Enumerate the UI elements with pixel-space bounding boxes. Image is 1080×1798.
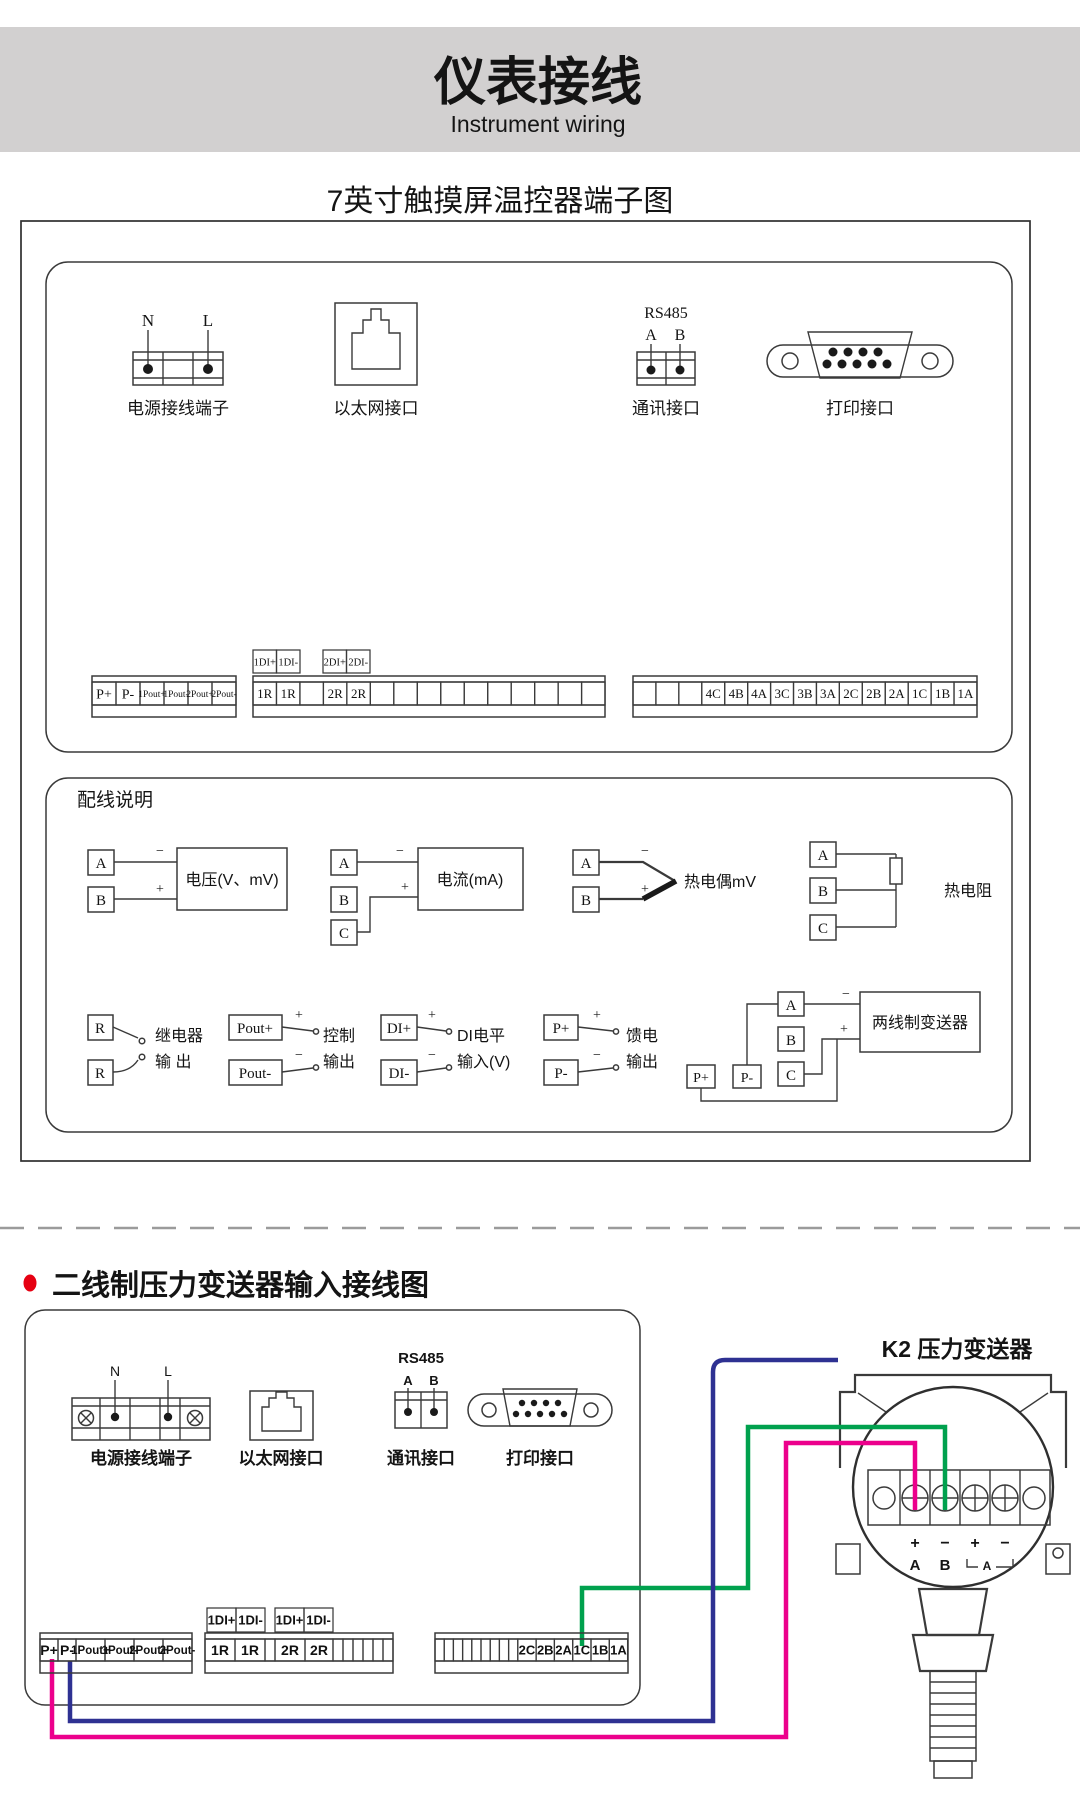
wire-pink (52, 1443, 915, 1737)
control-label2: 输出 (323, 1053, 355, 1071)
rs485-b-label: B (429, 1373, 438, 1388)
transmitter-title: K2 压力变送器 (882, 1336, 1034, 1362)
plus-mark: + (641, 882, 649, 897)
terminal-a: A (581, 856, 592, 872)
relay-label2: 输 出 (155, 1053, 191, 1071)
terminal-cell (679, 682, 702, 705)
transmitter-hex-nut (913, 1635, 993, 1671)
minus-mark: − (396, 844, 404, 859)
wire-blue (70, 1360, 838, 1721)
thermocouple-label: 热电偶mV (684, 873, 756, 891)
minus-mark: − (295, 1048, 303, 1063)
terminal-p-plus: P+ (553, 1021, 570, 1037)
plus-mark: + (593, 1008, 601, 1023)
minus-mark: − (641, 844, 649, 859)
printer-port: 打印接口 (767, 332, 953, 418)
plus-mark: + (401, 880, 409, 895)
switch-contact (139, 1038, 145, 1044)
di-terminal-box-2: 2DI+2DI- (323, 650, 370, 673)
printer-caption: 打印接口 (506, 1448, 574, 1468)
plus-mark: + (156, 882, 164, 897)
power-caption: 电源接线端子 (127, 399, 229, 418)
terminal-cell-label: 1R (211, 1642, 229, 1658)
terminal-p-minus: P- (741, 1071, 754, 1086)
wiring-current: A B C − + 电流(mA) (331, 844, 523, 945)
terminal-cell-label: 1C (912, 686, 927, 701)
terminal-cell (535, 682, 558, 705)
printer-caption: 打印接口 (826, 399, 894, 418)
rs485-a-label: A (645, 327, 657, 344)
terminal-cell (472, 1639, 481, 1661)
terminal-cell-label: 4C (706, 686, 721, 701)
minus-mark: − (428, 1048, 436, 1063)
terminal-cell-label: 1R (281, 686, 297, 701)
plus-mark: + (295, 1008, 303, 1023)
terminal-cell-label: 2R (328, 686, 344, 701)
wiring-thermocouple: A B − + 热电偶mV (573, 844, 756, 912)
terminal-cell (490, 1639, 499, 1661)
terminal-cell-label: 2R (281, 1642, 299, 1658)
terminal-cell (265, 1639, 275, 1661)
n-terminal-dot (143, 364, 153, 374)
terminal-b-label: B (940, 1557, 951, 1574)
wiring-twowire: A B C P+ P- − + 两线制变送器 (687, 987, 980, 1101)
terminal-cell-label: 2Pout+ (186, 690, 214, 700)
minus-mark: − (156, 844, 164, 859)
plus-mark: + (428, 1008, 436, 1023)
ethernet-port-bottom: 以太网接口 (239, 1391, 324, 1468)
terminal-cell-label: P- (122, 688, 135, 703)
rs485-port-bottom: RS485 A B 通讯接口 (387, 1350, 455, 1468)
n-label: N (110, 1363, 120, 1379)
terminal-cell-label: 1DI+ (254, 657, 276, 668)
terminal-di-minus: DI- (389, 1066, 410, 1082)
transmitter-tip (934, 1761, 972, 1778)
minus-mark: − (940, 1535, 949, 1552)
terminal-cell (383, 1639, 393, 1661)
di-label2: 输入(V) (457, 1053, 510, 1071)
terminal-cell-label: 2DI+ (324, 657, 346, 668)
voltage-label: 电压(V、mV) (185, 871, 278, 889)
terminal-cell-label: 1DI+ (276, 1613, 304, 1628)
terminal-cell (363, 1639, 373, 1661)
pressure-transmitter: + − + − A B A (836, 1375, 1070, 1778)
terminal-cell (441, 682, 464, 705)
right-terminal-strip-bottom: 2C2B2A1C1B1A (435, 1633, 628, 1673)
terminal-b: B (96, 893, 106, 909)
terminal-a: A (818, 848, 829, 864)
terminal-cell-label: 3A (820, 686, 837, 701)
rs485-label: RS485 (644, 305, 688, 322)
terminal-cell-label: 4B (729, 686, 745, 701)
rs485-a-label: A (403, 1373, 413, 1388)
terminal-b: B (786, 1033, 796, 1049)
terminal-a: A (786, 998, 797, 1014)
resistor-icon (890, 858, 902, 884)
terminal-cell (370, 682, 393, 705)
ethernet-caption: 以太网接口 (334, 399, 419, 418)
minus-mark: − (1000, 1535, 1009, 1552)
terminal-cell (509, 1639, 518, 1661)
terminal-di-plus: DI+ (387, 1021, 411, 1037)
terminal-cell-label: 1DI+ (208, 1613, 236, 1628)
terminal-cell (333, 1639, 343, 1661)
terminal-cell-label: 3B (797, 686, 813, 701)
terminal-cell-label: P+ (96, 688, 112, 703)
wiring-diagram-canvas: 仪表接线 Instrument wiring 7英寸触摸屏温控器端子图 N L … (0, 0, 1080, 1798)
wiring-feed: P+ P- + − 馈电 输出 (544, 1008, 658, 1085)
di-terminal-box-1: 1DI+1DI- (253, 650, 300, 673)
terminal-cell (353, 1639, 363, 1661)
page-subtitle: Instrument wiring (450, 111, 625, 137)
terminal-cell (453, 1639, 462, 1661)
left-terminal-strip-bottom: P+P-1Pout+1Pout-2Pout+2Pout- (40, 1633, 196, 1673)
terminal-cell-label: 2DI- (348, 657, 368, 668)
rs485-port: RS485 A B 通讯接口 (632, 305, 700, 418)
relay-label: 继电器 (155, 1027, 203, 1045)
terminal-a: A (96, 856, 107, 872)
bullet-icon (24, 1275, 37, 1292)
terminal-b: B (339, 893, 349, 909)
power-terminal: N L 电源接线端子 (127, 311, 229, 418)
terminal-cell-label: 2A (555, 1643, 572, 1658)
section2-title: 二线制压力变送器输入接线图 (52, 1268, 429, 1302)
current-label: 电流(mA) (437, 871, 504, 889)
switch-contact (139, 1054, 145, 1060)
left-terminal-strip: P+P-1Pout+1Pout-2Pout+2Pout- (92, 676, 237, 717)
terminal-a-label: A (910, 1557, 921, 1574)
page-title: 仪表接线 (433, 54, 642, 112)
plus-mark: + (970, 1535, 979, 1552)
terminal-cell (343, 1639, 353, 1661)
terminal-cell-label: 4A (751, 686, 768, 701)
terminal-cell-label: 2C (519, 1643, 536, 1658)
terminal-cell-label: 2R (310, 1642, 328, 1658)
pair2-label: A (983, 1559, 992, 1573)
wiring-relay: R R 继电器 输 出 (88, 1015, 203, 1085)
terminal-cell (488, 682, 511, 705)
terminal-cell-label: 1Pout+ (138, 690, 166, 700)
wiring-voltage: A B − + 电压(V、mV) (88, 844, 287, 912)
terminal-cell-label: 2Pout- (211, 690, 236, 700)
terminal-cell-label: 2C (843, 686, 858, 701)
section1-terminal-diagram: N L 电源接线端子 以太网接口 RS485 A B (21, 221, 1030, 1161)
terminal-cell (300, 682, 323, 705)
side-lug (836, 1544, 860, 1574)
wiring-notes-frame (46, 778, 1012, 1132)
terminal-cell-label: 1R (241, 1642, 259, 1658)
terminal-cell-label: 1A (610, 1643, 627, 1658)
terminal-cell (373, 1639, 383, 1661)
terminal-cell-label: 1B (592, 1643, 609, 1658)
terminal-cell (463, 1639, 472, 1661)
terminal-cell (511, 682, 534, 705)
terminal-cell (558, 682, 581, 705)
terminal-cell-label: 2R (351, 686, 367, 701)
di-terminal-box-2-bottom: 1DI+1DI- (275, 1608, 333, 1632)
terminal-c: C (818, 921, 828, 937)
terminal-cell (464, 682, 487, 705)
rs485-b-label: B (675, 327, 686, 344)
terminal-cell (499, 1639, 508, 1661)
l-label: L (203, 311, 213, 330)
wiring-control: Pout+ Pout- + − 控制 输出 (229, 1008, 355, 1085)
minus-mark: − (842, 987, 850, 1002)
terminal-cell-label: 3C (774, 686, 789, 701)
terminal-a: A (339, 856, 350, 872)
middle-terminal-strip: 1R1R2R2R (253, 676, 605, 717)
wiring-notes-title: 配线说明 (77, 789, 153, 811)
header: 仪表接线 Instrument wiring (0, 27, 1080, 152)
terminal-cell (656, 682, 679, 705)
plus-mark: + (910, 1535, 919, 1552)
terminal-cell-label: 1B (935, 686, 951, 701)
comm-caption: 通讯接口 (387, 1448, 455, 1468)
comm-caption: 通讯接口 (632, 399, 700, 418)
terminal-p-minus: P- (554, 1066, 567, 1082)
terminal-cell-label: 2A (889, 686, 906, 701)
rtd-label: 热电阻 (944, 882, 992, 900)
terminal-cell (633, 682, 656, 705)
terminal-cell-label: 2B (537, 1643, 554, 1658)
ethernet-caption: 以太网接口 (239, 1448, 324, 1468)
section2-heading: 二线制压力变送器输入接线图 (24, 1268, 430, 1302)
twowire-label: 两线制变送器 (872, 1014, 968, 1032)
minus-mark: − (593, 1048, 601, 1063)
power-caption: 电源接线端子 (90, 1448, 192, 1468)
terminal-r: R (95, 1021, 105, 1037)
section1-title: 7英寸触摸屏温控器端子图 (327, 185, 674, 218)
terminal-cell-label: 1DI- (238, 1613, 263, 1628)
l-label: L (164, 1363, 172, 1379)
feed-label2: 输出 (626, 1053, 658, 1071)
rs485-label: RS485 (398, 1350, 444, 1367)
terminal-cell (394, 682, 417, 705)
terminal-b: B (581, 893, 591, 909)
terminal-cell-label: P+ (40, 1642, 58, 1658)
terminal-cell-label: 2B (866, 686, 882, 701)
ethernet-jack-icon (335, 303, 417, 385)
l-terminal-dot (203, 364, 213, 374)
terminal-pout-plus: Pout+ (237, 1021, 273, 1037)
right-terminal-strip: 4C4B4A3C3B3A2C2B2A1C1B1A (633, 676, 977, 717)
ethernet-port: 以太网接口 (334, 303, 419, 418)
terminal-b: B (818, 884, 828, 900)
terminal-cell-label: 1DI- (306, 1613, 331, 1628)
control-label: 控制 (323, 1027, 355, 1045)
terminal-c: C (339, 926, 349, 942)
plus-mark: + (840, 1022, 848, 1037)
terminal-cell-label: 1DI- (278, 657, 298, 668)
wiring-di: DI+ DI- + − DI电平 输入(V) (381, 1008, 510, 1085)
manual-page: 仪表接线 Instrument wiring 7英寸触摸屏温控器端子图 N L … (0, 0, 1080, 1798)
terminal-cell (417, 682, 440, 705)
terminal-cell (435, 1639, 444, 1661)
middle-terminal-strip-bottom: 1R1R2R2R (205, 1633, 393, 1673)
wiring-rtd: A B C 热电阻 (810, 842, 992, 940)
terminal-p-plus: P+ (693, 1071, 709, 1086)
terminal-cell-label: 1C (574, 1643, 591, 1658)
n-label: N (142, 311, 154, 330)
transmitter-neck (919, 1589, 987, 1635)
section2-diagram: N L 电源接线端子 以太网接口 (25, 1310, 1070, 1778)
terminal-cell (481, 1639, 490, 1661)
terminal-panel-frame (46, 262, 1012, 752)
di-terminal-box-1-bottom: 1DI+1DI- (207, 1608, 265, 1632)
terminal-cell (444, 1639, 453, 1661)
terminal-pout-minus: Pout- (239, 1066, 272, 1082)
terminal-cell (582, 682, 605, 705)
feed-label: 馈电 (626, 1027, 658, 1045)
di-label: DI电平 (457, 1027, 505, 1045)
terminal-cell-label: 1A (958, 686, 975, 701)
terminal-cell-label: 2Pout- (160, 1645, 196, 1657)
power-terminal-bottom: N L 电源接线端子 (72, 1363, 210, 1468)
terminal-r: R (95, 1066, 105, 1082)
printer-port-bottom: 打印接口 (468, 1389, 612, 1468)
terminal-c: C (786, 1068, 796, 1084)
terminal-cell-label: 1R (257, 686, 273, 701)
terminal-cell-label: 1Pout- (163, 690, 188, 700)
ethernet-jack-icon (250, 1391, 313, 1440)
